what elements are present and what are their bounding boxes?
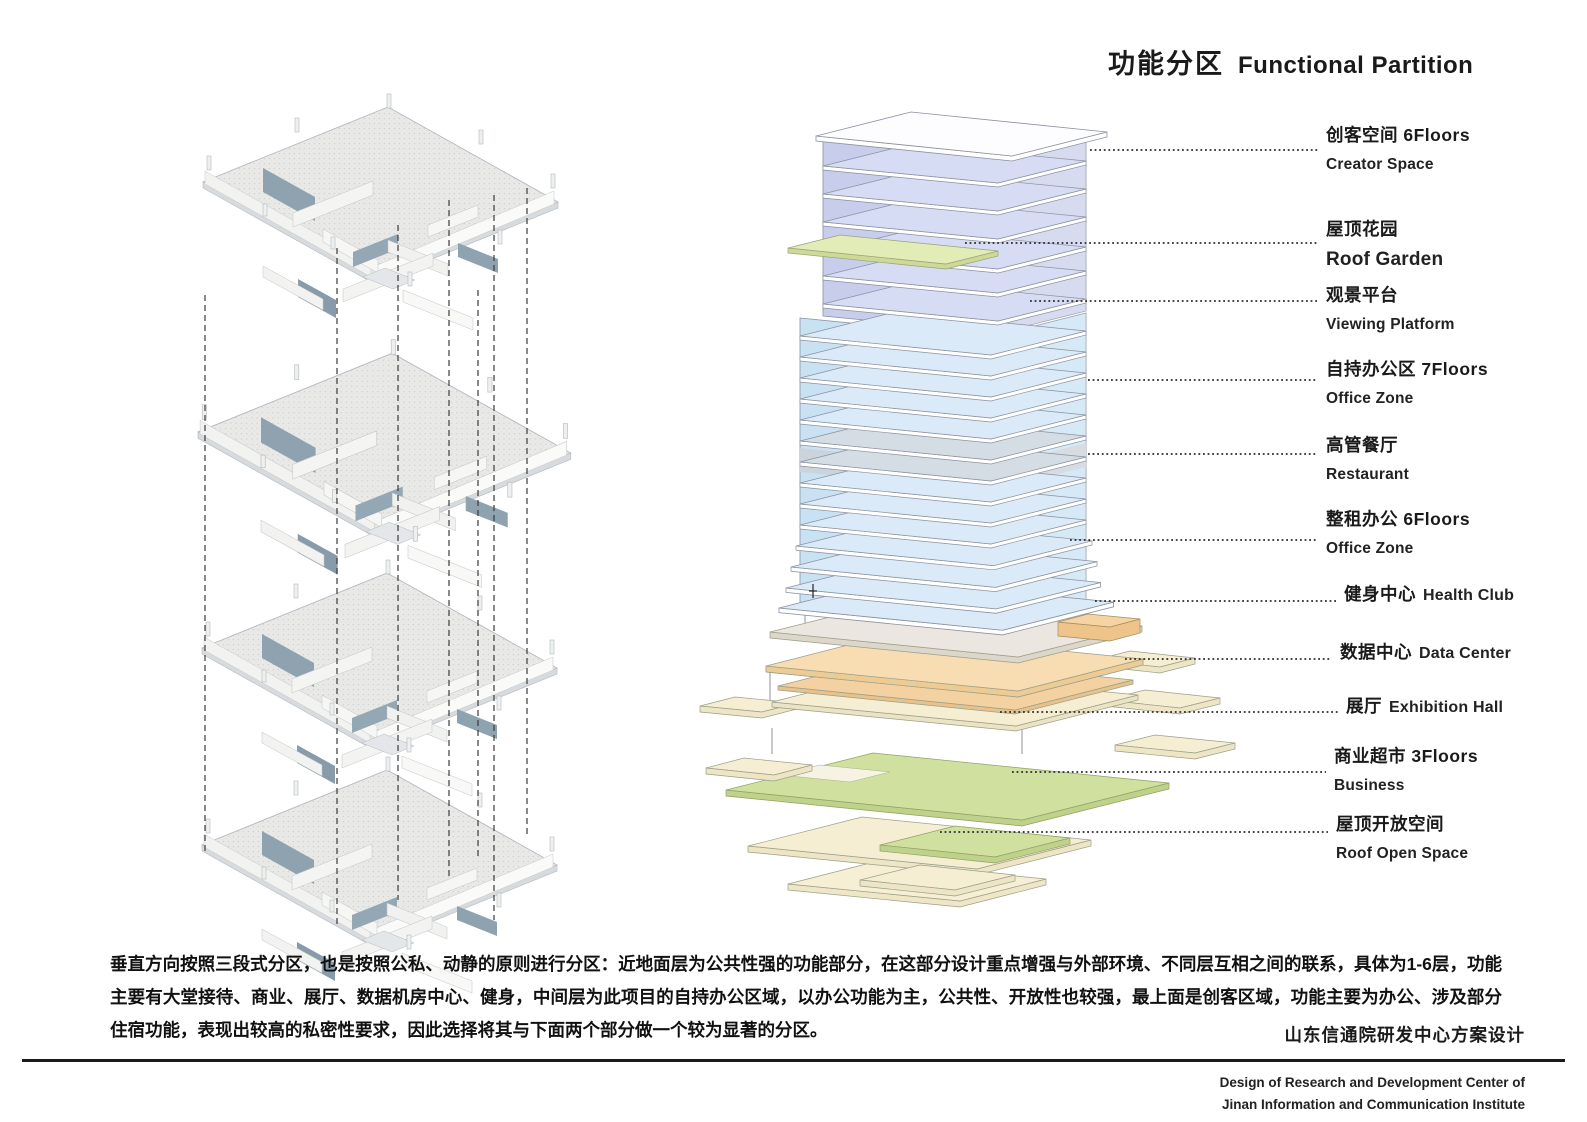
legend-item-creator-space: 创客空间 6Floors Creator Space (1326, 126, 1470, 173)
legend-item-business: 商业超市 3Floors Business (1334, 747, 1478, 794)
legend-cn: 健身中心 (1344, 584, 1416, 604)
legend-en: Viewing Platform (1326, 316, 1455, 333)
page-title: 功能分区Functional Partition (1108, 42, 1473, 81)
legend-cn: 数据中心 (1340, 642, 1412, 662)
legend-item-office-zone-7f: 自持办公区 7Floors Office Zone (1326, 360, 1488, 407)
legend-en: Office Zone (1326, 540, 1470, 557)
legend-en: Exhibition Hall (1389, 699, 1503, 716)
legend-cn: 观景平台 (1326, 285, 1398, 305)
legend-cn: 屋顶花园 (1326, 219, 1398, 239)
building-tower (700, 112, 1338, 907)
legend-en: Restaurant (1326, 466, 1409, 483)
project-en-line2: Jinan Information and Communication Inst… (1220, 1094, 1525, 1116)
legend-en: Creator Space (1326, 156, 1470, 173)
legend-en: Data Center (1419, 645, 1511, 662)
legend-en: Roof Open Space (1336, 845, 1468, 862)
legend-item-roof-open-space: 屋顶开放空间 Roof Open Space (1336, 815, 1468, 862)
legend-cn: 商业超市 3Floors (1334, 746, 1478, 766)
legend-cn: 创客空间 6Floors (1326, 125, 1470, 145)
exploded-floor-plans (198, 94, 571, 993)
legend-en: Office Zone (1326, 390, 1488, 407)
functional-partition-sheet: 功能分区Functional Partition 创客空间 6Floors Cr… (0, 0, 1587, 1122)
legend-item-office-zone-6f: 整租办公 6Floors Office Zone (1326, 510, 1470, 557)
page-title-cn: 功能分区 (1108, 49, 1224, 79)
legend-item-viewing-platform: 观景平台 Viewing Platform (1326, 286, 1455, 333)
podium (700, 601, 1235, 907)
legend-item-health-club: 健身中心Health Club (1344, 585, 1514, 605)
legend-cn: 屋顶开放空间 (1336, 814, 1444, 834)
project-en-line1: Design of Research and Development Cente… (1220, 1072, 1525, 1094)
legend-cn: 整租办公 6Floors (1326, 509, 1470, 529)
legend-en: Business (1334, 777, 1478, 794)
legend-item-data-center: 数据中心Data Center (1340, 643, 1511, 663)
legend-item-roof-garden: 屋顶花园 Roof Garden (1326, 220, 1443, 270)
legend-en: Roof Garden (1326, 250, 1443, 271)
legend-item-restaurant: 高管餐厅 Restaurant (1326, 436, 1409, 483)
legend-cn: 高管餐厅 (1326, 435, 1398, 455)
footer-rule (22, 1059, 1565, 1062)
legend-cn: 自持办公区 7Floors (1326, 359, 1488, 379)
legend-en: Health Club (1423, 587, 1514, 604)
legend-cn: 展厅 (1346, 696, 1382, 716)
legend-item-exhibition-hall: 展厅Exhibition Hall (1346, 697, 1503, 717)
project-name-en: Design of Research and Development Cente… (1220, 1072, 1525, 1116)
project-name-cn: 山东信通院研发中心方案设计 (1285, 1022, 1526, 1047)
page-title-en: Functional Partition (1238, 52, 1473, 79)
